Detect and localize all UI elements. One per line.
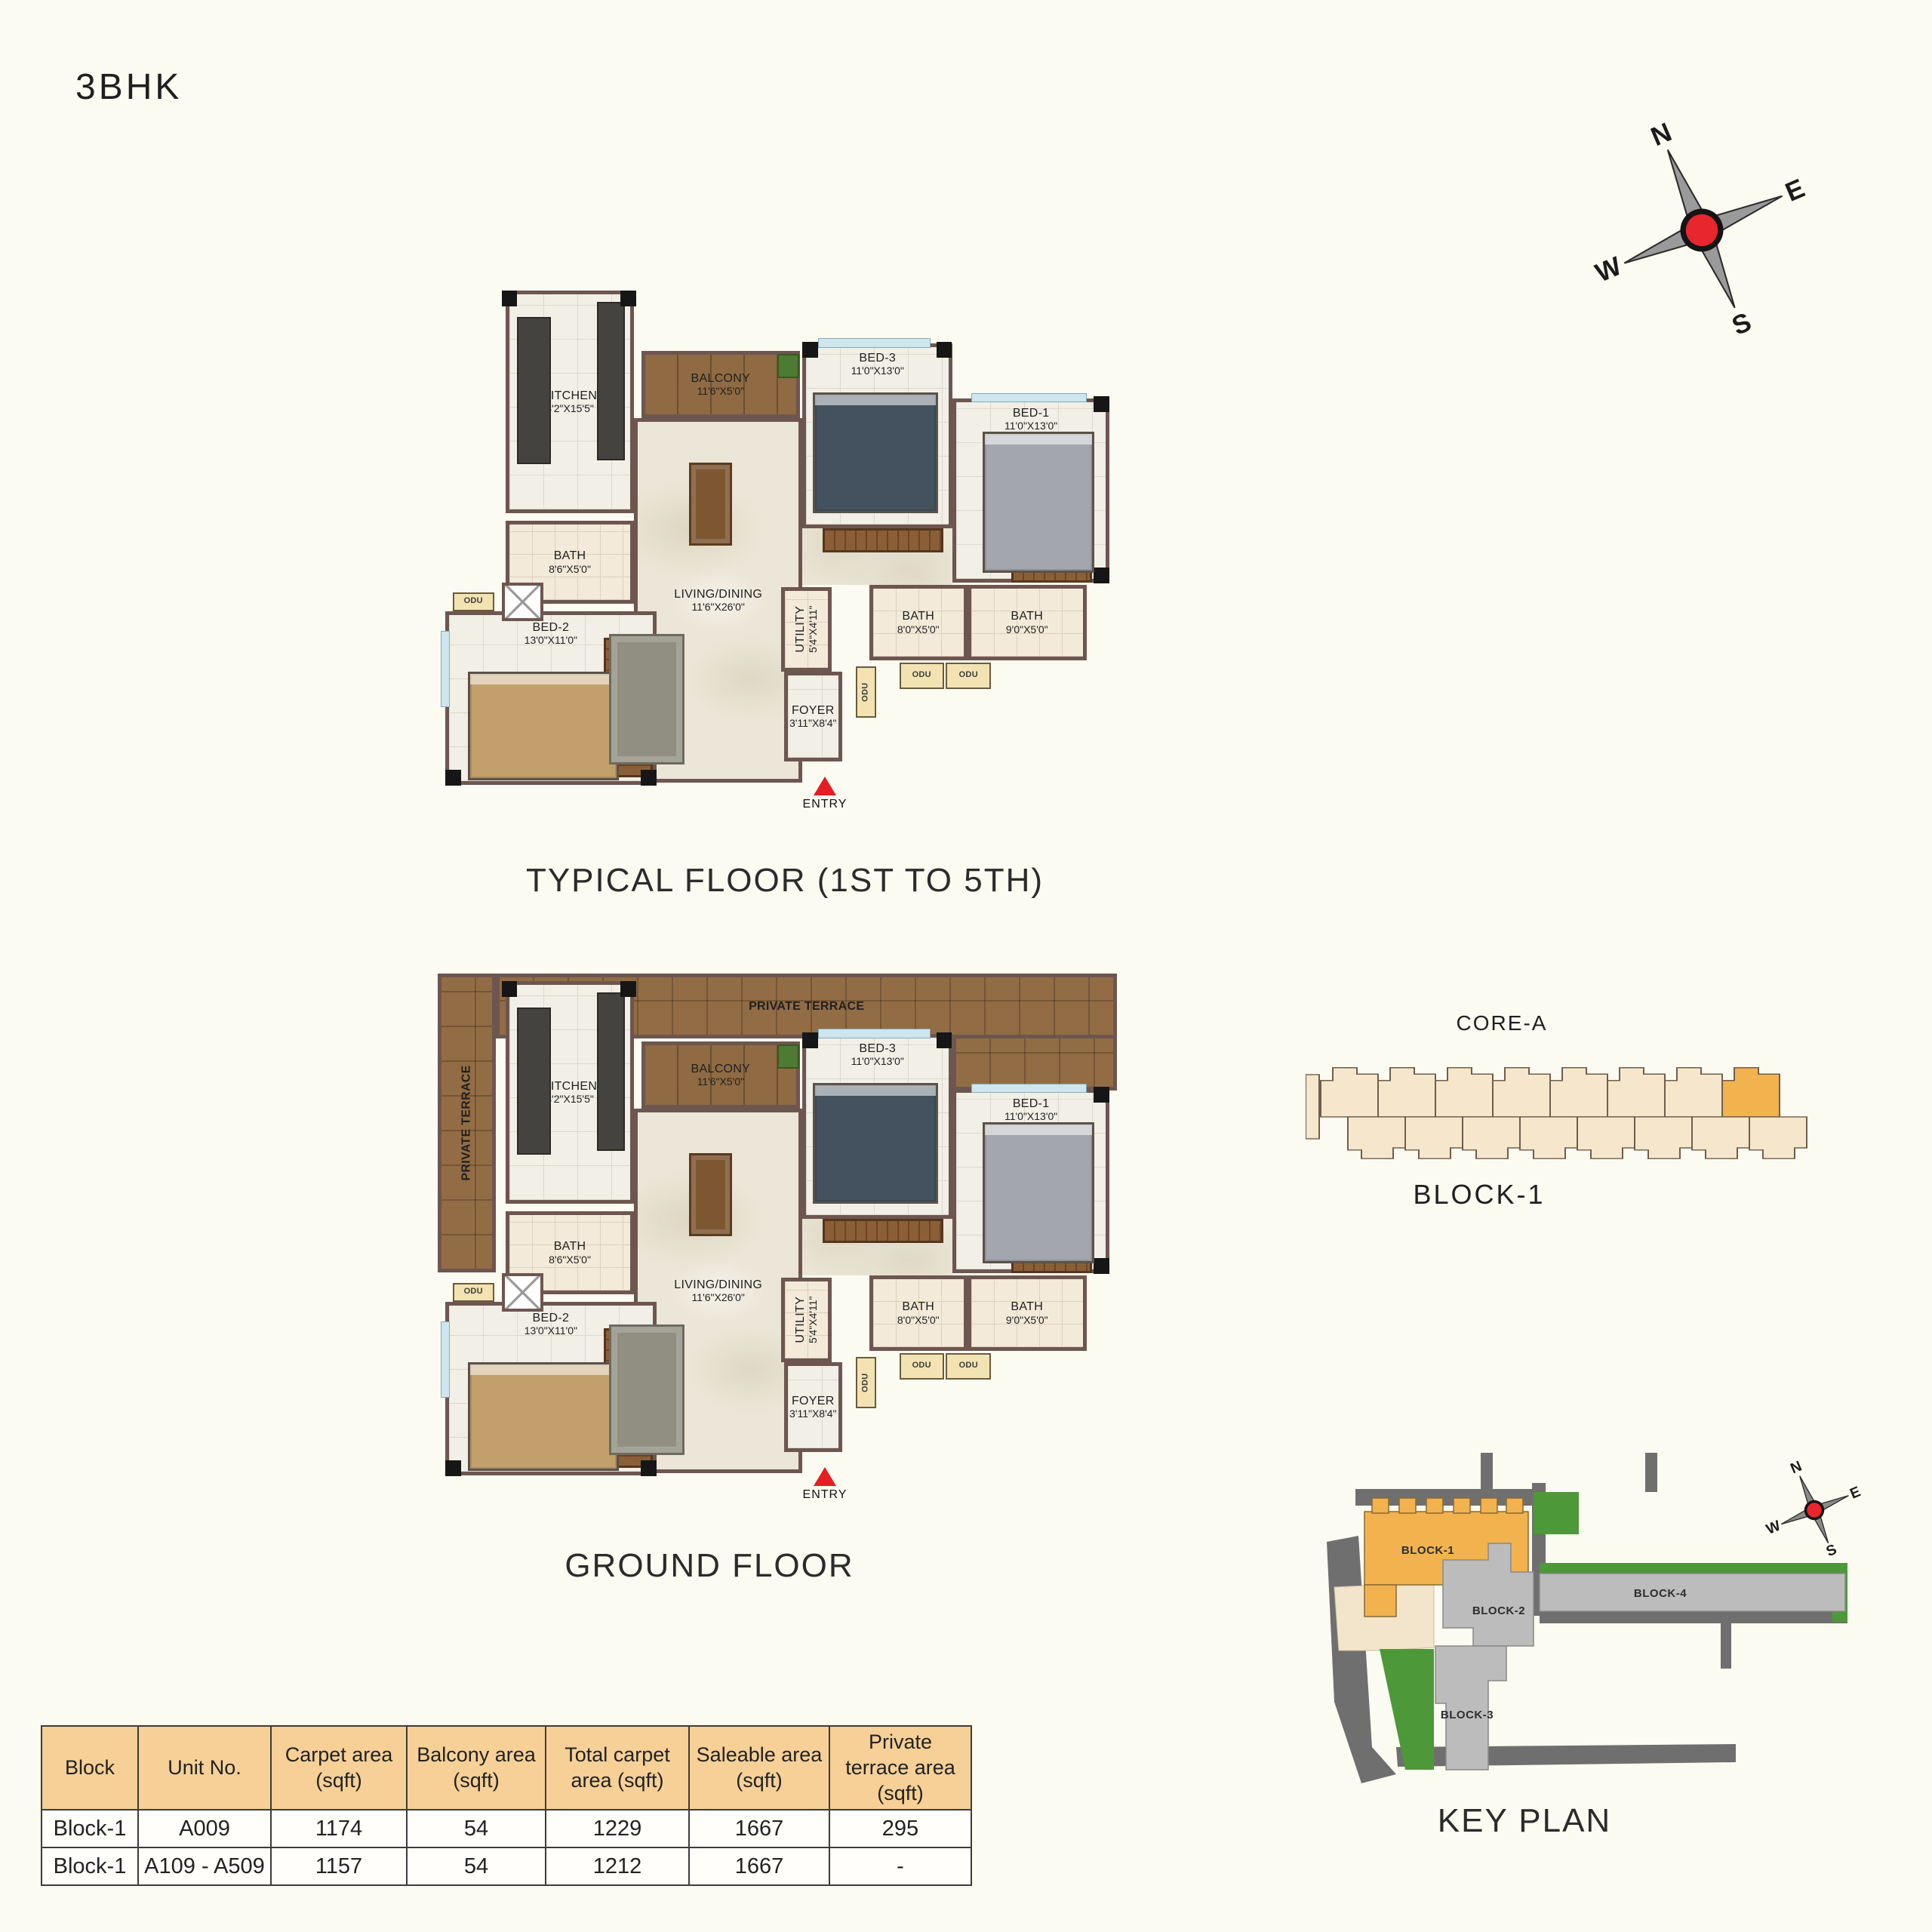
column — [1094, 1087, 1109, 1103]
column — [1094, 1258, 1109, 1274]
table-header-cell: Block — [42, 1726, 138, 1810]
core-unit — [1435, 1068, 1493, 1117]
block-2-label: BLOCK-2 — [1472, 1604, 1525, 1617]
private-terrace-left: PRIVATE TERRACE — [438, 974, 496, 1272]
block-4-label: BLOCK-4 — [1634, 1587, 1687, 1600]
window — [818, 1029, 931, 1038]
room-label: ODU — [454, 594, 493, 610]
odu-unit: ODU — [946, 1353, 991, 1380]
bed-furniture — [983, 1122, 1095, 1263]
core-unit — [1635, 1117, 1692, 1158]
planter — [777, 1044, 799, 1069]
entry-arrow-icon — [814, 777, 836, 795]
table-cell: 1667 — [689, 1810, 829, 1847]
window — [441, 1321, 451, 1398]
svg-text:S: S — [1824, 1541, 1840, 1560]
brochure-page: { "page": {"title": "3BHK"}, "compass": … — [0, 0, 1932, 1932]
column — [620, 291, 636, 306]
odu-unit: ODU — [453, 592, 494, 611]
typical-floor-plan: LIVING/DINING11'6"X26'0"KITCHEN8'2"X15'5… — [438, 283, 1117, 826]
page-title: 3BHK — [75, 66, 182, 108]
area-table-head-row: BlockUnit No.Carpet area (sqft)Balcony a… — [42, 1726, 971, 1810]
bed-furniture — [813, 1083, 939, 1204]
room-label: ODU — [841, 1374, 890, 1391]
core-unit — [1405, 1117, 1463, 1158]
odu-unit: ODU — [856, 666, 876, 718]
column — [1094, 568, 1109, 583]
key-plan-compass-icon: N E S W — [1746, 1453, 1880, 1578]
table-cell: 1212 — [546, 1847, 689, 1885]
table-header-cell: Carpet area (sqft) — [271, 1726, 407, 1810]
column — [445, 1460, 461, 1476]
compass-w-label: W — [1591, 251, 1626, 288]
compass-n-label: N — [1647, 117, 1676, 152]
core-unit — [1520, 1117, 1577, 1158]
column — [802, 1032, 818, 1048]
svg-text:N: N — [1788, 1458, 1804, 1478]
core-title: CORE-A — [1306, 1011, 1698, 1035]
room-bath-3: BATH9'0"X5'0" — [968, 1275, 1087, 1352]
area-table: BlockUnit No.Carpet area (sqft)Balcony a… — [41, 1725, 972, 1886]
bed-furniture — [983, 432, 1095, 573]
service-shaft — [502, 1273, 544, 1312]
kitchen-counter — [597, 302, 626, 460]
room-label: FOYER3'11"X8'4" — [788, 1366, 838, 1448]
sofa-set — [609, 634, 685, 764]
entry-label: ENTRY — [801, 1488, 849, 1502]
room-label: BALCONY11'6"X5'0" — [645, 355, 796, 414]
table-row: Block-1A109 - A50911575412121667- — [42, 1847, 971, 1885]
column — [937, 342, 952, 358]
bed-furniture — [468, 1362, 620, 1471]
room-foyer: FOYER3'11"X8'4" — [784, 1362, 842, 1452]
core-block-diagram: CORE-A BLOCK-1 — [1306, 1011, 1834, 1238]
core-unit — [1607, 1068, 1665, 1117]
core-block-label: BLOCK-1 — [1306, 1179, 1653, 1211]
table-cell: 1174 — [271, 1810, 407, 1847]
table-cell: 1229 — [546, 1810, 689, 1847]
table-cell: 54 — [407, 1810, 546, 1847]
core-units-svg — [1306, 1045, 1834, 1174]
room-label: ODU — [901, 664, 943, 688]
room-utility: UTILITY5'4"X4'11" — [781, 587, 832, 672]
planter — [777, 354, 799, 378]
column — [641, 770, 657, 786]
room-label: BATH8'0"X5'0" — [873, 1279, 964, 1348]
room-label: ODU — [841, 683, 890, 700]
kitchen-counter — [517, 317, 551, 463]
core-unit — [1378, 1068, 1435, 1117]
room-utility: UTILITY5'4"X4'11" — [781, 1278, 832, 1362]
column — [502, 291, 518, 306]
dining-table — [689, 1153, 732, 1236]
window — [971, 393, 1087, 402]
bed-furniture — [468, 672, 620, 780]
table-cell: A009 — [138, 1810, 271, 1847]
kitchen-counter — [597, 992, 626, 1151]
wardrobe-bed-3 — [823, 528, 943, 552]
table-header-cell: Balcony area (sqft) — [407, 1726, 546, 1810]
core-unit — [1692, 1117, 1749, 1158]
room-balcony: BALCONY11'6"X5'0" — [641, 351, 800, 418]
wardrobe-bed-3 — [823, 1219, 943, 1243]
column — [502, 981, 518, 997]
core-unit — [1749, 1117, 1807, 1158]
table-row: Block-1A00911745412291667295 — [42, 1810, 971, 1847]
room-label: BATH9'0"X5'0" — [971, 589, 1083, 657]
table-cell: A109 - A509 — [138, 1847, 271, 1885]
core-unit — [1722, 1068, 1780, 1117]
core-unit — [1577, 1117, 1635, 1158]
ground-floor-caption: GROUND FLOOR — [513, 1547, 906, 1585]
core-unit — [1321, 1068, 1378, 1117]
table-header-cell: Total carpet area (sqft) — [546, 1726, 689, 1810]
typical-floor-caption: TYPICAL FLOOR (1ST TO 5TH) — [513, 862, 1057, 900]
column — [802, 342, 818, 358]
compass-e-label: E — [1781, 174, 1809, 208]
room-label: BALCONY11'6"X5'0" — [645, 1045, 796, 1105]
key-plan-block-4 — [1540, 1574, 1845, 1611]
ground-floor-plan: PRIVATE TERRACEPRIVATE TERRACELIVING/DIN… — [438, 974, 1117, 1517]
room-label: ODU — [454, 1284, 493, 1300]
column — [937, 1032, 952, 1048]
bed-furniture — [813, 392, 939, 514]
room-label: ODU — [901, 1355, 943, 1378]
table-cell: 1157 — [271, 1847, 407, 1885]
table-header-cell: Private terrace area (sqft) — [829, 1726, 971, 1810]
entry-arrow-icon — [814, 1467, 836, 1486]
table-cell: - — [829, 1847, 971, 1885]
entry-marker: ENTRY — [801, 777, 849, 823]
table-cell: Block-1 — [42, 1810, 138, 1847]
room-label: BATH8'0"X5'0" — [873, 589, 964, 657]
service-shaft — [502, 583, 544, 621]
odu-unit: ODU — [856, 1357, 876, 1408]
room-bath-3: BATH9'0"X5'0" — [968, 585, 1087, 661]
key-plan-caption: KEY PLAN — [1419, 1802, 1630, 1840]
column — [641, 1460, 657, 1476]
svg-text:W: W — [1764, 1517, 1783, 1538]
dining-table — [689, 463, 732, 546]
core-unit — [1665, 1068, 1722, 1117]
area-table-body: Block-1A00911745412291667295Block-1A109 … — [42, 1810, 971, 1885]
sofa-set — [609, 1324, 685, 1455]
core-unit — [1493, 1068, 1550, 1117]
entry-label: ENTRY — [801, 798, 849, 811]
table-header-cell: Saleable area (sqft) — [689, 1726, 829, 1810]
room-balcony: BALCONY11'6"X5'0" — [641, 1041, 800, 1109]
odu-unit: ODU — [453, 1283, 494, 1302]
window — [818, 338, 931, 347]
window — [971, 1084, 1087, 1093]
entry-marker: ENTRY — [801, 1467, 849, 1514]
compass-icon: N E S W — [1585, 113, 1819, 347]
room-label: ODU — [947, 664, 989, 688]
svg-text:E: E — [1847, 1483, 1863, 1502]
kitchen-counter — [517, 1008, 551, 1154]
room-bath-2: BATH8'0"X5'0" — [869, 1275, 968, 1352]
compass-needle — [1677, 205, 1726, 254]
table-cell: Block-1 — [42, 1847, 138, 1885]
odu-unit: ODU — [900, 663, 944, 689]
room-label: FOYER3'11"X8'4" — [788, 675, 838, 758]
table-cell: 295 — [829, 1810, 971, 1847]
core-unit — [1550, 1068, 1607, 1117]
column — [620, 981, 636, 997]
key-plan-map: BLOCK-1 BLOCK-2 BLOCK-3 BLOCK-4 N E S W — [1313, 1453, 1887, 1785]
table-cell: 1667 — [689, 1847, 829, 1885]
core-unit — [1348, 1117, 1405, 1158]
room-label: ODU — [947, 1355, 989, 1378]
column — [1094, 396, 1109, 412]
odu-unit: ODU — [900, 1353, 944, 1380]
column — [445, 770, 461, 786]
table-cell: 54 — [407, 1847, 546, 1885]
compass-s-label: S — [1727, 307, 1755, 341]
room-bath-2: BATH8'0"X5'0" — [869, 585, 968, 661]
table-header-cell: Unit No. — [138, 1726, 271, 1810]
block-1-label: BLOCK-1 — [1401, 1544, 1454, 1557]
window — [441, 631, 451, 707]
core-unit — [1306, 1075, 1319, 1139]
room-label: BATH9'0"X5'0" — [971, 1279, 1083, 1348]
room-foyer: FOYER3'11"X8'4" — [784, 672, 842, 761]
core-unit — [1463, 1117, 1520, 1158]
odu-unit: ODU — [946, 663, 991, 689]
block-3-label: BLOCK-3 — [1441, 1709, 1494, 1721]
